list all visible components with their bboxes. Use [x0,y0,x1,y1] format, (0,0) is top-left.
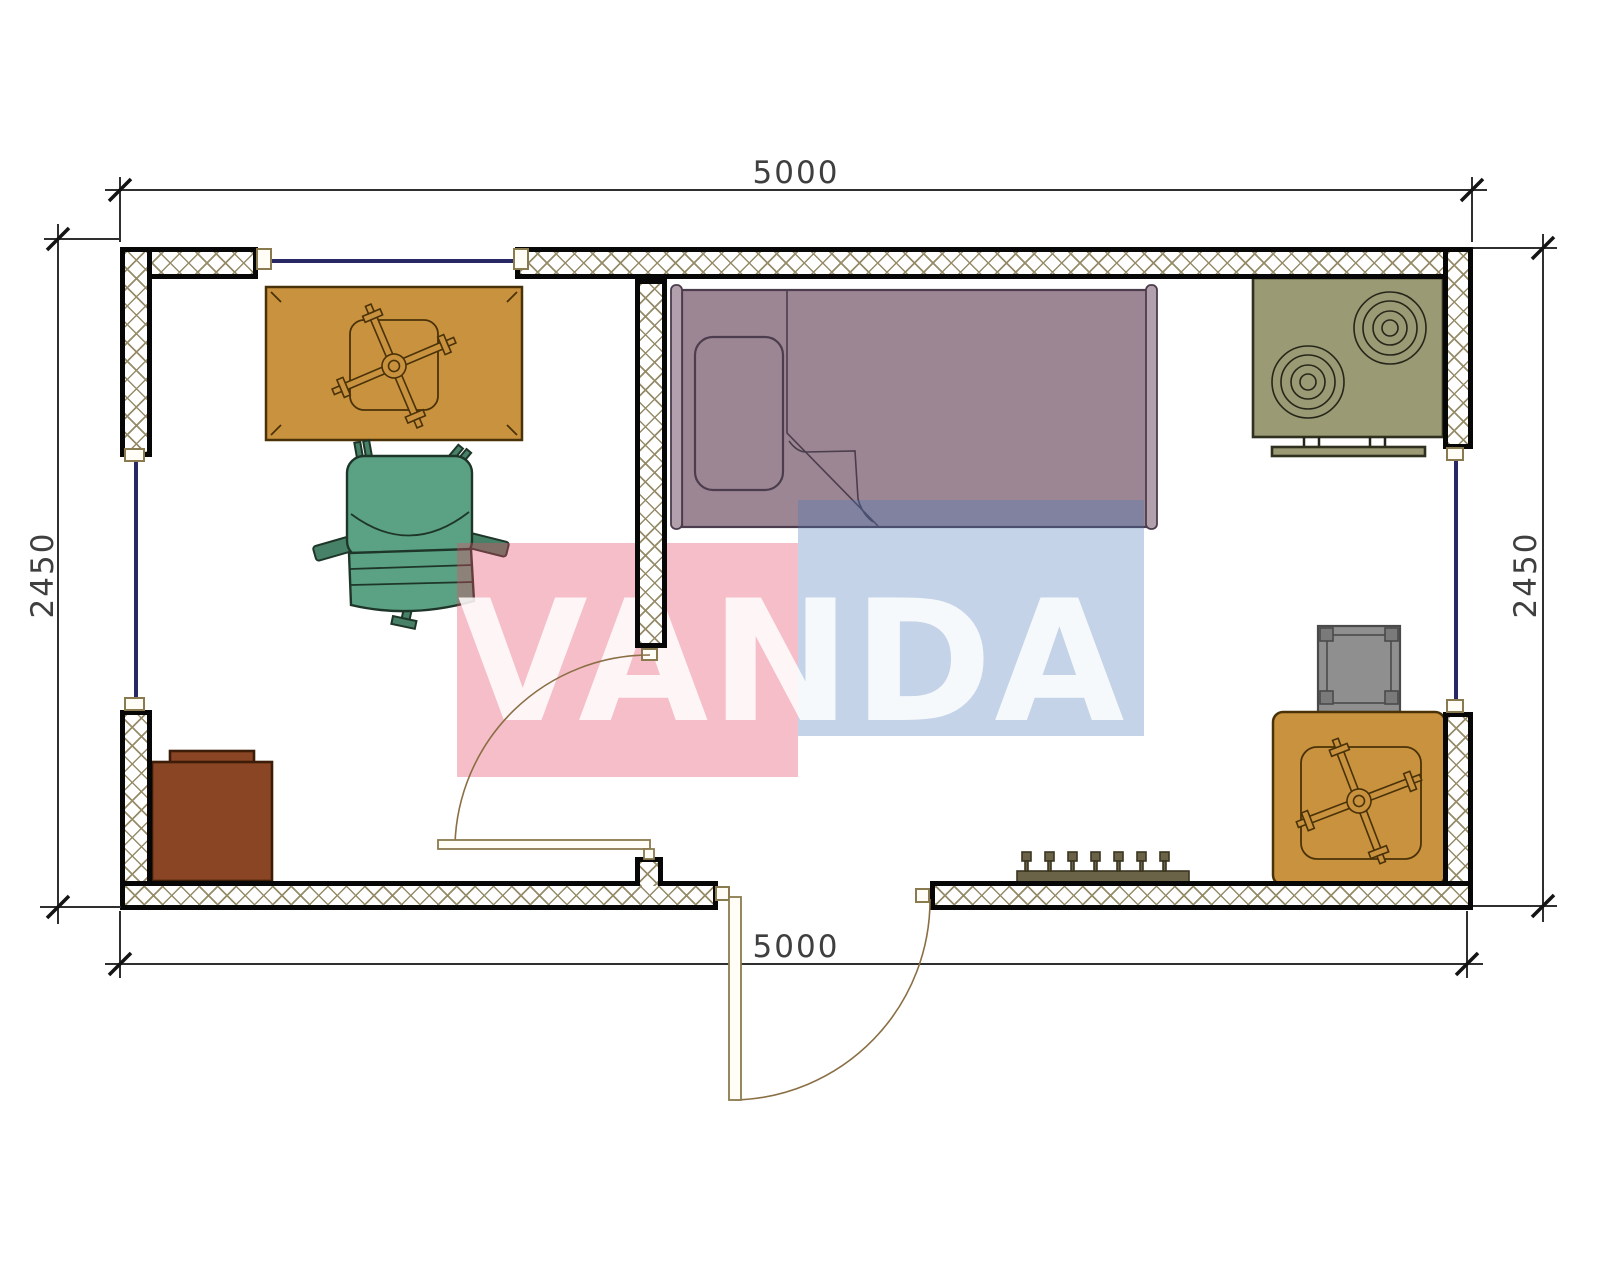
doors-and-ticks-layer [0,0,1600,1280]
dimension-ticks [47,179,1554,975]
interior-door [438,655,654,859]
entry-door [729,897,930,1100]
floor-plan: VANDA 5000 5000 2450 2450 [0,0,1600,1280]
